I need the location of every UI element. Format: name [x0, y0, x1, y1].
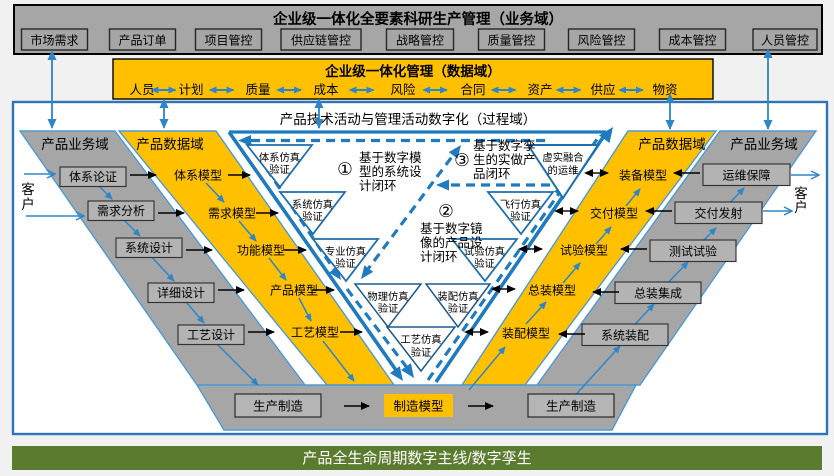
svg-text:验证: 验证: [302, 210, 323, 223]
svg-text:企业级一体化管理（数据域）: 企业级一体化管理（数据域）: [324, 63, 501, 79]
svg-text:成本管控: 成本管控: [668, 33, 716, 48]
svg-text:专业仿真: 专业仿真: [325, 245, 366, 258]
svg-text:产品数据域: 产品数据域: [136, 137, 204, 152]
svg-text:像的产品设: 像的产品设: [420, 235, 483, 250]
svg-text:风险管控: 风险管控: [577, 33, 625, 48]
svg-text:功能模型: 功能模型: [237, 244, 285, 258]
svg-text:工艺设计: 工艺设计: [187, 328, 235, 342]
svg-text:客: 客: [21, 181, 35, 197]
svg-text:试验模型: 试验模型: [560, 243, 608, 258]
svg-text:项目管控: 项目管控: [204, 33, 252, 48]
svg-text:总装集成: 总装集成: [634, 286, 682, 301]
svg-text:质量: 质量: [245, 83, 270, 97]
svg-text:验证: 验证: [474, 257, 495, 270]
svg-text:交付发射: 交付发射: [694, 206, 742, 221]
svg-text:基于数字孪: 基于数字孪: [473, 138, 536, 153]
svg-text:体系仿真: 体系仿真: [259, 151, 300, 164]
svg-text:详细设计: 详细设计: [157, 285, 205, 300]
svg-text:产品业务域: 产品业务域: [730, 137, 798, 152]
svg-text:③: ③: [454, 150, 470, 170]
svg-text:体系论证: 体系论证: [69, 170, 117, 184]
svg-text:交付模型: 交付模型: [590, 206, 638, 221]
svg-text:系统仿真: 系统仿真: [292, 198, 333, 211]
svg-text:运维保障: 运维保障: [722, 168, 770, 183]
svg-text:飞行仿真: 飞行仿真: [500, 198, 541, 211]
svg-text:②: ②: [438, 201, 454, 221]
svg-text:产品模型: 产品模型: [270, 284, 318, 298]
svg-text:风险: 风险: [390, 82, 416, 97]
svg-text:基于数字镜: 基于数字镜: [420, 221, 483, 236]
svg-text:生产制造: 生产制造: [546, 400, 597, 414]
svg-text:产品业务域: 产品业务域: [41, 137, 109, 152]
svg-text:市场需求: 市场需求: [30, 33, 78, 48]
svg-text:品闭环: 品闭环: [473, 167, 511, 181]
svg-text:户: 户: [21, 196, 35, 212]
svg-text:验证: 验证: [335, 257, 356, 270]
svg-text:验证: 验证: [510, 210, 531, 223]
svg-text:资产: 资产: [527, 83, 552, 97]
svg-text:企业级一体化全要素科研生产管理（业务域）: 企业级一体化全要素科研生产管理（业务域）: [272, 10, 563, 28]
svg-text:计划: 计划: [178, 83, 203, 97]
svg-text:验证: 验证: [448, 302, 469, 315]
svg-text:物资: 物资: [652, 83, 677, 97]
svg-text:需求模型: 需求模型: [208, 207, 256, 221]
svg-text:生的实做产: 生的实做产: [473, 152, 536, 167]
svg-text:装配模型: 装配模型: [502, 327, 550, 341]
svg-text:装配仿真: 装配仿真: [437, 290, 478, 303]
svg-text:工艺模型: 工艺模型: [291, 326, 339, 340]
svg-text:产品全生命周期数字主线/数字孪生: 产品全生命周期数字主线/数字孪生: [302, 449, 531, 467]
svg-text:供应: 供应: [590, 82, 615, 97]
svg-text:人员: 人员: [129, 83, 154, 97]
svg-text:人员管控: 人员管控: [761, 33, 809, 48]
svg-text:合同: 合同: [460, 82, 485, 97]
svg-text:①: ①: [337, 159, 353, 179]
svg-text:总装模型: 总装模型: [528, 284, 576, 298]
svg-text:工艺仿真: 工艺仿真: [400, 333, 441, 346]
svg-text:验证: 验证: [411, 346, 432, 359]
svg-text:需求分析: 需求分析: [97, 204, 145, 218]
svg-text:产品订单: 产品订单: [118, 34, 166, 48]
svg-text:测试试验: 测试试验: [669, 244, 717, 259]
svg-text:产品数据域: 产品数据域: [638, 137, 706, 152]
svg-text:生产制造: 生产制造: [253, 400, 304, 414]
svg-text:战略管控: 战略管控: [396, 33, 444, 48]
svg-text:成本: 成本: [313, 83, 339, 97]
svg-text:验证: 验证: [269, 163, 290, 176]
svg-text:型的系统设: 型的系统设: [359, 164, 422, 179]
svg-text:物理仿真: 物理仿真: [367, 290, 408, 303]
svg-text:系统设计: 系统设计: [125, 241, 173, 255]
svg-text:制造模型: 制造模型: [393, 400, 443, 414]
svg-text:供应链管控: 供应链管控: [291, 33, 351, 48]
svg-text:装备模型: 装备模型: [619, 169, 667, 183]
svg-text:体系模型: 体系模型: [174, 169, 222, 183]
svg-text:质量管控: 质量管控: [487, 33, 535, 48]
svg-text:计闭环: 计闭环: [359, 179, 397, 193]
svg-text:的运维: 的运维: [548, 164, 579, 177]
svg-text:基于数字模: 基于数字模: [359, 150, 422, 165]
svg-text:计闭环: 计闭环: [420, 250, 458, 264]
svg-text:系统装配: 系统装配: [601, 329, 649, 343]
svg-text:验证: 验证: [378, 302, 399, 315]
svg-text:户: 户: [794, 199, 808, 215]
svg-text:虚实融合: 虚实融合: [542, 151, 583, 164]
svg-text:客: 客: [794, 185, 808, 201]
